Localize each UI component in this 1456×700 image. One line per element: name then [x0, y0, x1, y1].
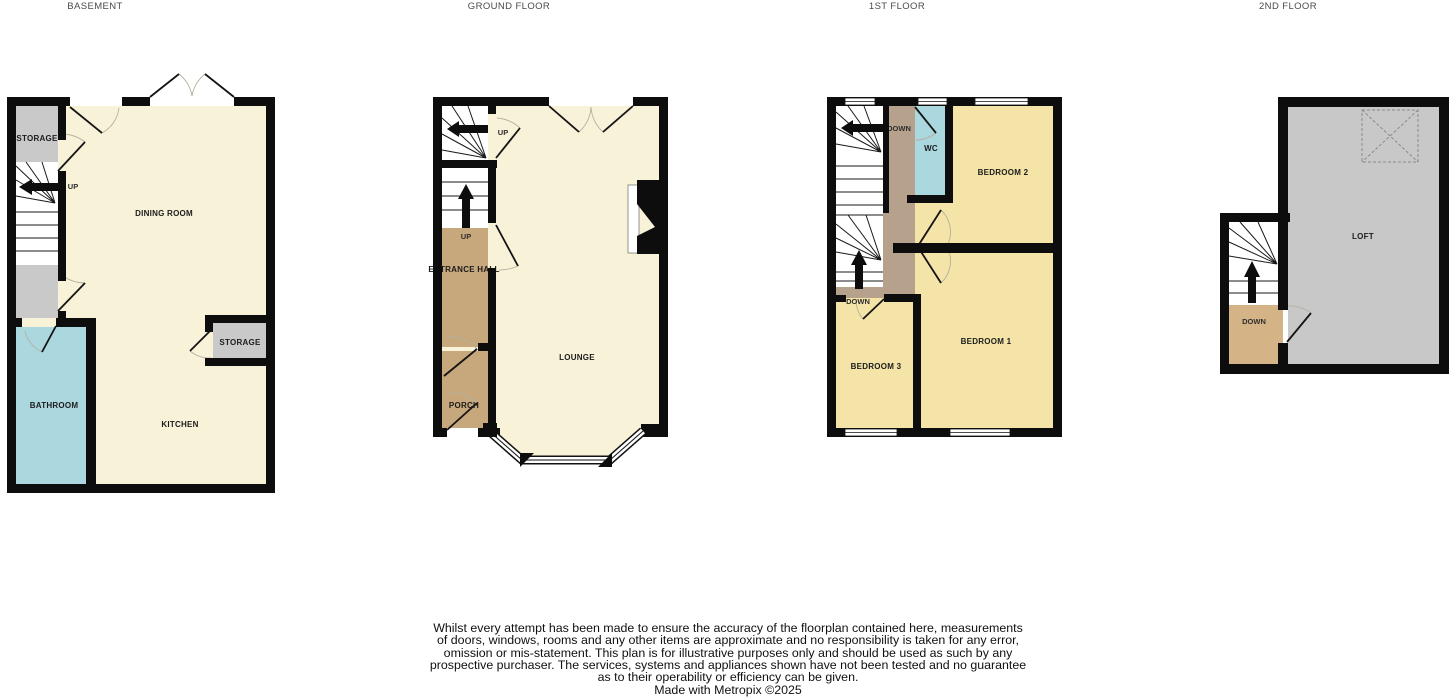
disclaimer-line: as to their operability or efficiency ca… [0, 671, 1456, 683]
room-label-bedroom2: BEDROOM 2 [978, 168, 1029, 177]
room-label-bedroom1: BEDROOM 1 [961, 337, 1012, 346]
bay-corner-post [483, 423, 497, 437]
stair-label-up-mid: UP [461, 232, 471, 241]
floorplan-second-floor: LOFT DOWN [1220, 97, 1449, 374]
floorplans-canvas: STORAGE DINING ROOM UP STORAGE BATHROOM … [0, 0, 1456, 700]
room-entrance-hall-fill [442, 228, 488, 347]
stair-label-up: UP [68, 182, 78, 191]
stair-label-down: DOWN [1242, 317, 1266, 326]
room-label-porch: PORCH [449, 401, 479, 410]
disclaimer-line: of doors, windows, rooms and any other i… [0, 634, 1456, 646]
room-label-storage-left: STORAGE [16, 134, 58, 143]
room-porch-fill [442, 351, 488, 428]
metropix-credit: Made with Metropix ©2025 [0, 684, 1456, 696]
floorplan-basement: STORAGE DINING ROOM UP STORAGE BATHROOM … [7, 74, 275, 493]
disclaimer: Whilst every attempt has been made to en… [0, 622, 1456, 696]
landing-second-fill [1229, 305, 1283, 365]
room-label-loft: LOFT [1352, 232, 1374, 241]
room-label-lounge: LOUNGE [559, 353, 595, 362]
room-label-kitchen: KITCHEN [161, 420, 198, 429]
room-label-wc: WC [924, 144, 938, 153]
room-label-storage-right: STORAGE [219, 338, 261, 347]
room-label-bedroom3: BEDROOM 3 [851, 362, 902, 371]
floorplan-page: BASEMENT GROUND FLOOR 1ST FLOOR 2ND FLOO… [0, 0, 1456, 700]
stair-label-up-top: UP [498, 128, 508, 137]
room-label-bathroom: BATHROOM [30, 401, 79, 410]
understairs-store-fill [16, 265, 58, 318]
room-label-dining-room: DINING ROOM [135, 209, 193, 218]
stair-label-down-mid: DOWN [846, 297, 870, 306]
stair-label-down-top: DOWN [887, 124, 911, 133]
floorplan-first-floor: DOWN WC BEDROOM 2 DOWN BEDROOM 3 BEDROOM… [827, 97, 1062, 437]
fireplace [628, 180, 668, 254]
floorplan-ground-floor: UP UP ENTRANCE HALL PORCH LOUNGE [428, 97, 668, 467]
